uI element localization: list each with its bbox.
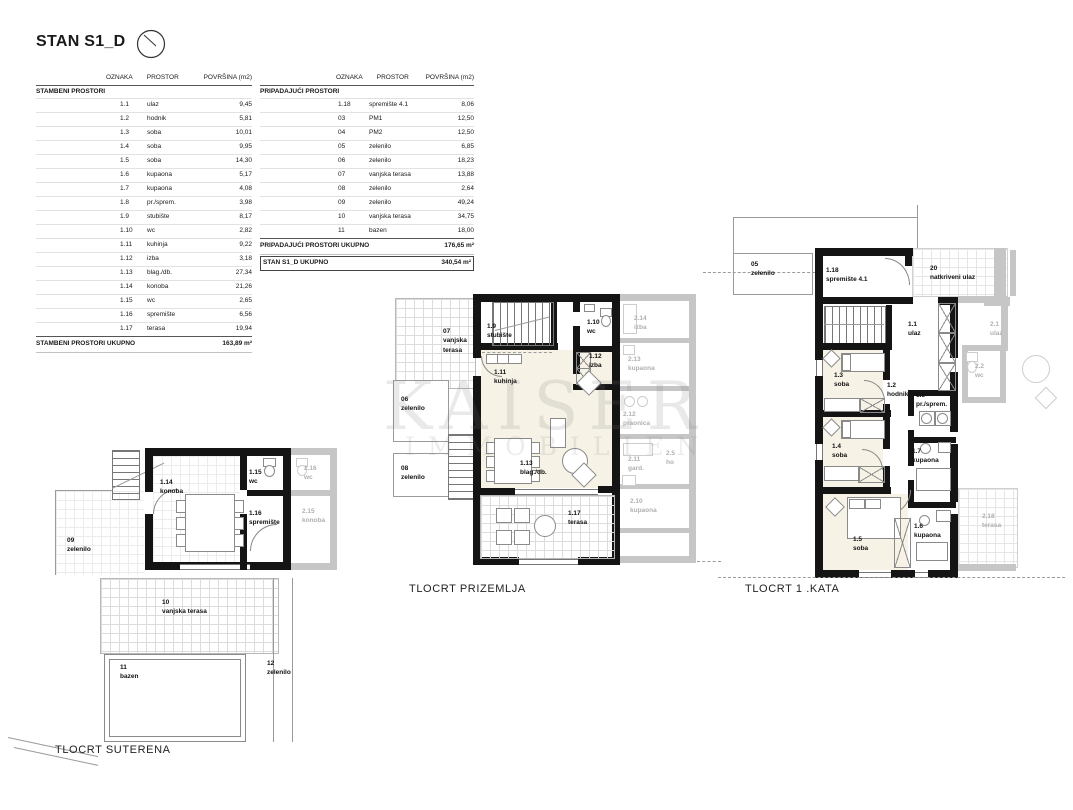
room-label-vanjska-terasa-10: 10vanjska terasa: [162, 598, 207, 617]
wall: [950, 444, 958, 502]
room-label-terasa: 1.17terasa: [568, 509, 587, 528]
wardrobe: [938, 363, 956, 391]
neighbor-fixture: [622, 475, 636, 486]
table-row: 1.9stubište8,17: [36, 210, 252, 224]
wall: [473, 488, 515, 495]
dashed-line: [718, 577, 1065, 578]
neighbor-wall: [994, 248, 1006, 300]
neighbor-wall: [1010, 250, 1016, 296]
wall: [815, 248, 913, 256]
neighbor-wall: [620, 556, 696, 563]
table-row: 1.17terasa19,94: [36, 322, 252, 336]
room-label-neighbor-wc: 2.16wc: [304, 464, 317, 483]
pillow: [865, 499, 881, 509]
room-label-izba: 1.12izba: [589, 352, 602, 371]
table-row: 1.8pr./sprem.3,98: [36, 196, 252, 210]
room-label-kupaona-16: 1.6kupaona: [914, 522, 941, 541]
chair: [234, 500, 244, 513]
room-label-neighbor-ulaz: 2.1ulaz: [990, 320, 1003, 339]
site-line: [55, 490, 112, 491]
table-row: 1.6kupaona5,17: [36, 168, 252, 182]
sofa: [550, 418, 566, 448]
stairs: [824, 306, 886, 344]
wall: [815, 343, 891, 350]
window: [519, 559, 578, 565]
site-line: [55, 490, 56, 575]
roof-line: [917, 205, 918, 248]
page-title: STAN S1_D: [36, 33, 126, 51]
room-label-pr-sprem: 1.8pr./sprem.: [916, 391, 947, 410]
wall: [247, 490, 291, 496]
room-label-ulaz: 1.1ulaz: [908, 320, 921, 339]
col-oznaka: OZNAKA: [106, 75, 133, 82]
exterior-stairs: [448, 434, 475, 500]
plan-caption-kat1: TLOCRT 1 .KATA: [745, 583, 839, 595]
room-label-konoba: 1.14konoba: [160, 478, 183, 497]
table-row: 1.16spremište6,56: [36, 308, 252, 322]
table-row: 1.3soba10,01: [36, 126, 252, 140]
wall: [240, 448, 247, 490]
neighbor-washer: [624, 396, 635, 407]
pillow: [842, 421, 851, 438]
room-label-zelenilo-05: 05zelenilo: [751, 260, 775, 279]
window: [816, 360, 823, 376]
plan-caption-suterena: TLOCRT SUTERENA: [55, 744, 171, 756]
table-header: OZNAKA PROSTOR POVRŠINA (m2): [36, 71, 252, 85]
neighbor-table: [1022, 355, 1050, 383]
wall: [598, 486, 620, 493]
col-povrsina: POVRŠINA (m2): [179, 75, 252, 82]
table-row: 07vanjska terasa13,88: [260, 168, 474, 182]
washer-drum: [921, 413, 932, 424]
chair: [176, 500, 186, 513]
sink: [938, 442, 951, 453]
room-label-neighbor-izba: 2.14izba: [634, 314, 647, 333]
table-row: 1.12izba3,18: [36, 252, 252, 266]
door-arc: [250, 524, 277, 551]
col-prostor: PROSTOR: [377, 75, 409, 82]
table-row: 06zelenilo18,23: [260, 154, 474, 168]
chair: [486, 456, 495, 468]
chair: [234, 534, 244, 547]
terrace-chair: [496, 530, 512, 545]
wall: [815, 297, 913, 304]
table-row: 1.18spremište 4.18,06: [260, 98, 474, 112]
roof-line: [733, 217, 734, 253]
wardrobe: [938, 303, 956, 333]
stairs-landing: [824, 324, 884, 325]
wall: [950, 514, 958, 570]
col-oznaka: OZNAKA: [336, 75, 363, 82]
section-title: PRIPADAJUĆI PROSTORI: [260, 85, 474, 98]
terrace-chair: [514, 530, 530, 545]
table-row: 1.2hodnik5,81: [36, 112, 252, 126]
neighbor-washer: [637, 396, 648, 407]
neighbor-wall: [689, 294, 696, 563]
room-label-zelenilo-09: 09zelenilo: [67, 536, 91, 555]
room-label-neighbor-wc: 2.2wc: [975, 362, 984, 381]
col-povrsina: POVRŠINA (m2): [409, 75, 474, 82]
wall: [905, 248, 912, 266]
room-label-zelenilo-08: 08zelenilo: [401, 464, 425, 483]
desk: [824, 466, 860, 481]
washer-drum: [937, 413, 948, 424]
kitchen-stove: [508, 354, 522, 364]
associated-total-row: PRIPADAJUĆI PROSTORI UKUPNO176,65 m²: [260, 238, 474, 255]
wall: [573, 326, 580, 348]
roof-line: [733, 217, 917, 218]
chair: [486, 442, 495, 454]
room-label-zelenilo-12: 12zelenilo: [267, 659, 291, 678]
room-label-soba-13: 1.3soba: [834, 371, 849, 390]
table-row: 1.13blag./db.27,34: [36, 266, 252, 280]
neighbor-wall: [620, 434, 692, 439]
table-row: 1.14konoba21,26: [36, 280, 252, 294]
neighbor-fixture: [623, 345, 635, 355]
window: [816, 444, 823, 460]
wall: [145, 448, 291, 456]
neighbor-wall: [620, 386, 692, 391]
neighbor-wall: [1000, 345, 1006, 403]
table-associated-spaces: OZNAKA PROSTOR POVRŠINA (m2) PRIPADAJUĆI…: [260, 71, 474, 271]
section-title: STAMBENI PROSTORI: [36, 85, 252, 98]
wall: [283, 448, 291, 570]
wardrobe: [938, 333, 956, 363]
room-label-wc: 1.15wc: [249, 468, 262, 487]
neighbor-wall: [291, 563, 337, 570]
kitchen-counter-line: [482, 352, 552, 353]
wall: [145, 448, 153, 492]
sink: [936, 510, 951, 522]
wall: [908, 502, 956, 508]
table-row: 1.7kupaona4,08: [36, 182, 252, 196]
dashed-line: [697, 561, 721, 562]
shower: [916, 542, 948, 561]
table-row: 05zelenilo6,85: [260, 140, 474, 154]
table-header: OZNAKA PROSTOR POVRŠINA (m2): [260, 71, 474, 85]
wall: [612, 394, 620, 490]
neighbor-wall: [620, 294, 696, 301]
room-label-neighbor-kupaona: 2.13kupaona: [628, 355, 655, 374]
floor-plan-sheet: STAN S1_D OZNAKA PROSTOR POVRŠINA (m2) S…: [0, 0, 1073, 810]
table-row: 1.10wc2,82: [36, 224, 252, 238]
chair: [234, 517, 244, 530]
room-label-vanjska-terasa-07: 07vanjska terasa: [443, 327, 475, 355]
room-label-natkriveni-ulaz: 20natkriveni ulaz: [930, 264, 975, 283]
toilet-bowl: [264, 465, 275, 477]
neighbor-wall: [291, 490, 337, 496]
neighbor-wall: [962, 397, 1006, 403]
room-label-neighbor-konoba: 2.15konoba: [302, 507, 325, 526]
neighbor-chair: [1035, 387, 1058, 410]
residential-total-row: STAMBENI PROSTORI UKUPNO163,89 m²: [36, 336, 252, 353]
wall: [573, 294, 580, 312]
neighbor-wall: [620, 528, 692, 533]
room-label-soba-14: 1.4soba: [832, 442, 847, 461]
room-label-hodnik: 1.2hodnik: [887, 381, 908, 400]
closet: [894, 518, 911, 568]
desk: [824, 398, 860, 412]
chair: [531, 442, 540, 454]
ground-grid: [56, 491, 144, 575]
room-label-stubiste: 1.9stubište: [487, 322, 512, 341]
table-row: 03PM112,50: [260, 112, 474, 126]
chair: [486, 470, 495, 482]
plan-caption-prizemlje: TLOCRT PRIZEMLJA: [409, 583, 526, 595]
wall: [815, 487, 891, 494]
room-label-neighbor-kupaona-2: 2.10kupaona: [630, 497, 657, 516]
green-strip-line: [292, 578, 293, 742]
table-row: 04PM212,50: [260, 126, 474, 140]
terrace-table: [534, 515, 556, 537]
room-label-neighbor-praonica: 2.12praonica: [623, 410, 650, 429]
table-row: 10vanjska terasa34,75: [260, 210, 474, 224]
room-label-kuhinja: 1.11kuhinja: [494, 368, 517, 387]
table-row: 11bazen18,00: [260, 224, 474, 238]
terrace-chair: [496, 508, 512, 523]
chair: [176, 534, 186, 547]
wall: [473, 294, 620, 302]
room-label-neighbor-terasa: 2.18terasa: [982, 512, 1001, 531]
sink: [584, 304, 595, 312]
table-row: 09zelenilo49,24: [260, 196, 474, 210]
table-furniture: [185, 494, 235, 552]
room-label-spremiste: 1.16spremište: [249, 509, 280, 528]
pillow: [849, 499, 865, 509]
bathtub: [916, 468, 951, 491]
table-row: 08zelenilo2,64: [260, 182, 474, 196]
wardrobe: [858, 466, 885, 483]
room-label-neighbor-hodnik: 2.5ho: [666, 449, 675, 468]
neighbor-wall: [620, 338, 692, 343]
wall: [908, 396, 914, 416]
neighbor-wall: [958, 564, 1016, 571]
table-row: 1.1ulaz9,45: [36, 98, 252, 112]
chair: [176, 517, 186, 530]
table-residential-spaces: OZNAKA PROSTOR POVRŠINA (m2) STAMBENI PR…: [36, 71, 252, 353]
table-row: 1.15wc2,65: [36, 294, 252, 308]
wall: [473, 376, 481, 506]
table-row: 1.11kuhinja9,22: [36, 238, 252, 252]
room-label-neighbor-gard: 2.11gard.: [628, 455, 644, 474]
wall: [612, 294, 620, 394]
wardrobe: [860, 398, 885, 413]
north-arrow-icon: [136, 29, 166, 59]
room-label-wc: 1.10wc: [587, 318, 600, 337]
col-prostor: PROSTOR: [147, 75, 179, 82]
neighbor-wall: [330, 448, 337, 570]
pillow: [842, 354, 851, 371]
room-label-blag-db: 1.13blag./db.: [520, 459, 547, 478]
room-label-soba-15: 1.5soba: [853, 535, 868, 554]
apartment-grand-total-row: STAN S1_D UKUPNO340,54 m²: [260, 256, 474, 271]
room-label-bazen: 11bazen: [120, 663, 138, 682]
toilet-bowl: [601, 315, 611, 327]
room-label-zelenilo-06: 06zelenilo: [401, 395, 425, 414]
table-row: 1.5soba14,30: [36, 154, 252, 168]
terrace-chair: [514, 508, 530, 523]
table-row: 1.4soba9,95: [36, 140, 252, 154]
room-label-spremiste-41: 1.18spremište 4.1: [826, 266, 868, 285]
room-label-kupaona-17: 1.7kupaona: [912, 447, 939, 466]
wall: [815, 460, 823, 570]
